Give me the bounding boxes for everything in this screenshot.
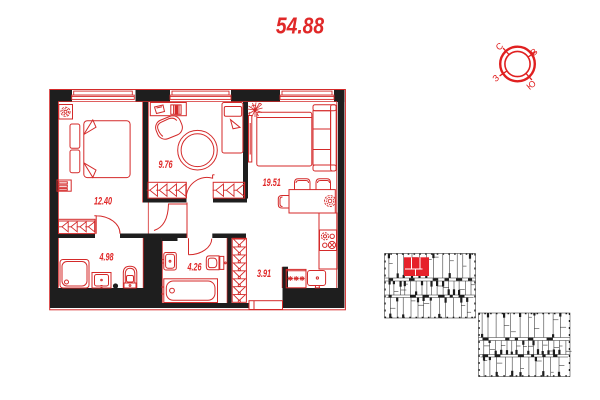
svg-text:54.88: 54.88 bbox=[276, 13, 324, 39]
svg-text:Ю: Ю bbox=[524, 78, 537, 92]
svg-text:19.51: 19.51 bbox=[263, 177, 281, 189]
svg-text:9.76: 9.76 bbox=[158, 159, 173, 171]
svg-text:С: С bbox=[494, 40, 506, 52]
svg-text:З: З bbox=[490, 73, 501, 84]
svg-text:4.98: 4.98 bbox=[99, 251, 115, 263]
svg-text:12.40: 12.40 bbox=[94, 195, 113, 207]
svg-text:4.26: 4.26 bbox=[187, 261, 203, 273]
svg-text:3.91: 3.91 bbox=[257, 268, 271, 280]
